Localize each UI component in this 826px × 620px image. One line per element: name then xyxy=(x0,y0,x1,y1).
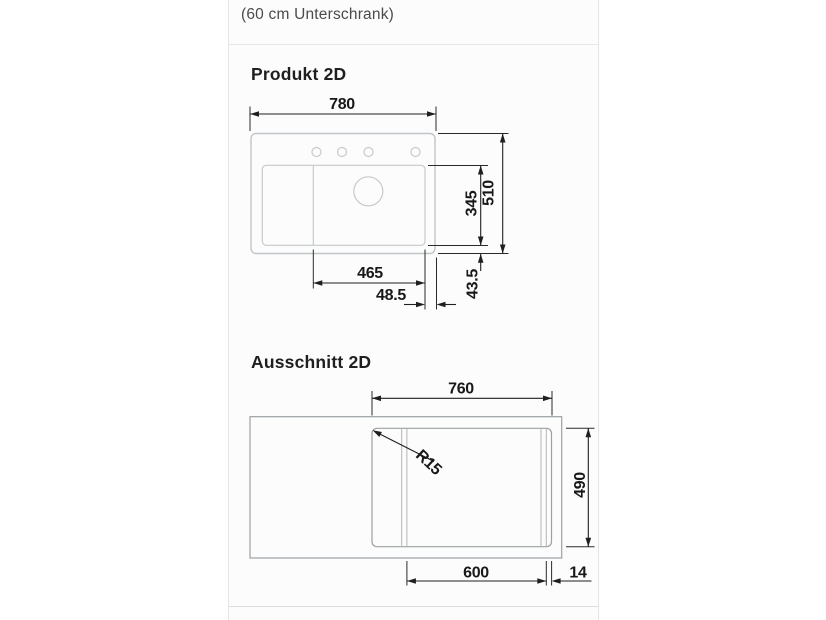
cutout-top-view xyxy=(250,417,562,558)
arrow-left-icon xyxy=(313,280,322,286)
spec-sheet-page: (60 cm Unterschrank) Produkt 2D 780 xyxy=(0,0,826,620)
dim-label-48-5: 48.5 xyxy=(376,287,406,304)
cutout-outline xyxy=(372,428,552,546)
ausschnitt-2d-drawing: R15 760 490 600 xyxy=(228,372,598,598)
arrow-left-icon xyxy=(552,578,561,584)
arrow-left-icon xyxy=(372,396,381,402)
dim-label-780: 780 xyxy=(329,96,355,113)
arrow-right-icon xyxy=(427,111,436,117)
produkt-2d-drawing: 780 345 510 43.5 xyxy=(228,88,598,320)
tap-hole-1 xyxy=(312,148,321,157)
arrow-right-icon xyxy=(416,302,425,308)
arrow-down-icon xyxy=(586,538,592,547)
arrow-left-icon xyxy=(437,302,446,308)
arrow-left-icon xyxy=(407,578,416,584)
ausschnitt-2d-heading: Ausschnitt 2D xyxy=(251,352,371,373)
dim-cutout-width: 760 xyxy=(372,381,552,416)
dim-label-760: 760 xyxy=(448,381,474,398)
arrow-right-icon xyxy=(543,396,552,402)
sink-top-view xyxy=(251,134,435,254)
drain-hole-circle xyxy=(354,177,383,206)
arrow-up-icon xyxy=(500,134,506,143)
worktop-outline xyxy=(250,417,562,558)
dim-rail-span: 600 xyxy=(407,561,546,586)
dim-bowl-depth: 345 xyxy=(428,166,488,246)
arrow-down-icon xyxy=(500,245,506,254)
dim-label-600: 600 xyxy=(463,565,489,582)
dim-label-510: 510 xyxy=(481,180,498,206)
dim-label-490: 490 xyxy=(572,472,589,498)
arrow-up-icon xyxy=(478,166,484,175)
tap-hole-2 xyxy=(338,148,347,157)
arrow-right-icon xyxy=(416,280,425,286)
top-divider xyxy=(229,44,598,45)
arrow-left-icon xyxy=(250,111,259,117)
dim-rail-edge-offset: 14 xyxy=(552,561,592,586)
arrow-up-left-icon xyxy=(373,430,382,437)
sink-outer-outline xyxy=(251,134,435,254)
tap-hole-4 xyxy=(411,148,420,157)
dim-bowl-width: 465 xyxy=(313,250,425,310)
dim-total-width: 780 xyxy=(250,96,436,131)
arrow-up-icon xyxy=(586,428,592,437)
tap-hole-3 xyxy=(364,148,373,157)
bottom-divider xyxy=(229,606,598,607)
arrow-up-icon xyxy=(478,254,484,263)
dim-label-465: 465 xyxy=(357,265,383,282)
dim-corner-radius: R15 xyxy=(373,430,445,479)
arrow-down-icon xyxy=(478,237,484,246)
dim-label-14: 14 xyxy=(569,565,587,582)
cabinet-size-note: (60 cm Unterschrank) xyxy=(241,6,394,24)
produkt-2d-heading: Produkt 2D xyxy=(251,64,346,85)
sink-bowl-rim-outline xyxy=(262,165,425,245)
dim-cutout-depth: 490 xyxy=(566,428,595,546)
dim-label-345: 345 xyxy=(464,190,481,216)
arrow-right-icon xyxy=(537,578,546,584)
dim-bowl-bottom-offset: 43.5 xyxy=(465,254,484,299)
dim-label-r15: R15 xyxy=(412,447,445,479)
dim-label-43-5: 43.5 xyxy=(465,269,482,299)
